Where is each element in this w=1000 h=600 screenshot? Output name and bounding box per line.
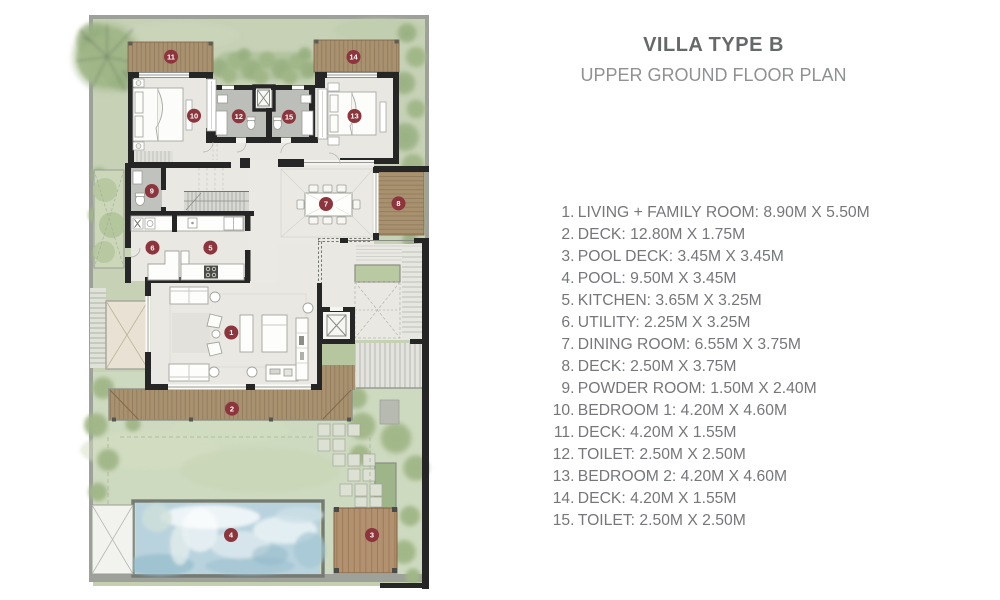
svg-text:6: 6 xyxy=(150,243,154,252)
svg-text:11: 11 xyxy=(167,52,175,61)
svg-text:10: 10 xyxy=(190,111,198,120)
svg-text:8: 8 xyxy=(396,199,400,208)
svg-text:13: 13 xyxy=(350,112,358,121)
svg-text:12: 12 xyxy=(235,112,243,121)
svg-text:15: 15 xyxy=(285,113,293,122)
svg-text:1: 1 xyxy=(229,328,233,337)
svg-text:7: 7 xyxy=(324,200,328,209)
svg-text:2: 2 xyxy=(230,404,234,413)
svg-text:3: 3 xyxy=(370,531,374,540)
svg-text:5: 5 xyxy=(208,243,212,252)
svg-text:14: 14 xyxy=(349,53,358,62)
svg-text:9: 9 xyxy=(150,187,154,196)
